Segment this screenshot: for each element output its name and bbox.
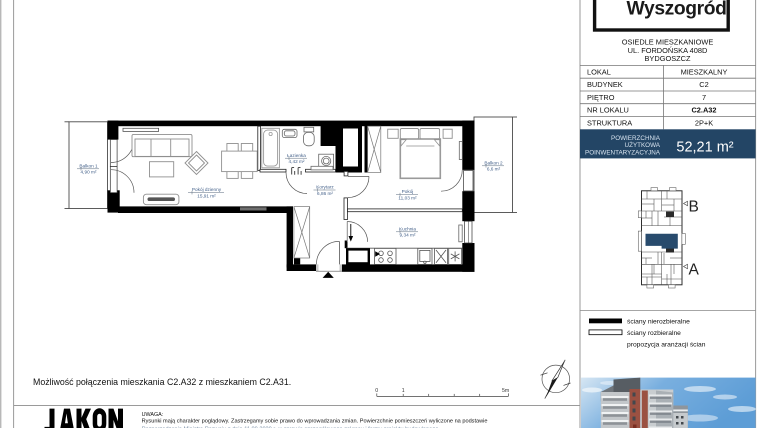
svg-text:POINWENTARYZACYJNA: POINWENTARYZACYJNA bbox=[585, 149, 661, 156]
svg-text:Korytarz: Korytarz bbox=[316, 185, 334, 190]
svg-text:1: 1 bbox=[402, 388, 405, 394]
svg-text:Rysunki mają charakter poglądo: Rysunki mają charakter poglądowy. Zastrz… bbox=[142, 418, 488, 424]
svg-text:Kuchnia: Kuchnia bbox=[399, 226, 416, 231]
svg-text:15,91 m²: 15,91 m² bbox=[197, 193, 216, 198]
svg-text:ściany nierozbieralne: ściany nierozbieralne bbox=[627, 319, 690, 326]
svg-text:Pokój: Pokój bbox=[402, 189, 414, 194]
svg-text:9,34 m²: 9,34 m² bbox=[400, 233, 416, 238]
svg-text:A: A bbox=[689, 262, 700, 279]
svg-text:PIĘTRO: PIĘTRO bbox=[587, 93, 615, 102]
svg-text:Łazienka: Łazienka bbox=[287, 153, 306, 158]
svg-text:C2: C2 bbox=[699, 80, 708, 89]
svg-text:C2.A32: C2.A32 bbox=[691, 106, 716, 115]
svg-text:5m: 5m bbox=[502, 388, 509, 394]
svg-text:6,86 m²: 6,86 m² bbox=[317, 191, 333, 196]
svg-text:0: 0 bbox=[375, 388, 378, 394]
svg-text:Możliwość połączenia mieszkani: Możliwość połączenia mieszkania C2.A32 z… bbox=[33, 377, 291, 387]
svg-text:4,42 m²: 4,42 m² bbox=[289, 159, 305, 164]
svg-text:ściany rozbieralne: ściany rozbieralne bbox=[627, 330, 681, 337]
svg-text:52,21 m²: 52,21 m² bbox=[676, 140, 733, 156]
svg-text:4,90 m²: 4,90 m² bbox=[81, 170, 97, 175]
svg-text:POWIERZCHNIA: POWIERZCHNIA bbox=[611, 135, 661, 142]
svg-text:Pokój dzienny: Pokój dzienny bbox=[192, 187, 222, 192]
svg-text:propozycja aranżacji ścian: propozycja aranżacji ścian bbox=[627, 341, 706, 348]
svg-text:6,6 m²: 6,6 m² bbox=[487, 167, 501, 172]
svg-text:UŻYTKOWA: UŻYTKOWA bbox=[625, 140, 661, 149]
svg-text:NR LOKALU: NR LOKALU bbox=[587, 106, 629, 115]
svg-text:BUDYNEK: BUDYNEK bbox=[587, 80, 623, 89]
svg-text:Balkon 2: Balkon 2 bbox=[484, 160, 503, 165]
svg-text:BYDGOSZCZ: BYDGOSZCZ bbox=[645, 54, 691, 63]
svg-text:Wyszogród: Wyszogród bbox=[627, 0, 727, 20]
svg-text:LOKAL: LOKAL bbox=[587, 67, 611, 76]
svg-text:11,03 m²: 11,03 m² bbox=[398, 195, 417, 200]
svg-text:Balkon 1: Balkon 1 bbox=[79, 163, 98, 168]
svg-text:B: B bbox=[689, 199, 699, 216]
svg-text:STRUKTURA: STRUKTURA bbox=[587, 118, 632, 127]
svg-text:2P+K: 2P+K bbox=[695, 118, 713, 127]
svg-text:UWAGA:: UWAGA: bbox=[142, 412, 164, 418]
svg-text:MIESZKALNY: MIESZKALNY bbox=[681, 67, 728, 76]
svg-text:7: 7 bbox=[702, 93, 706, 102]
